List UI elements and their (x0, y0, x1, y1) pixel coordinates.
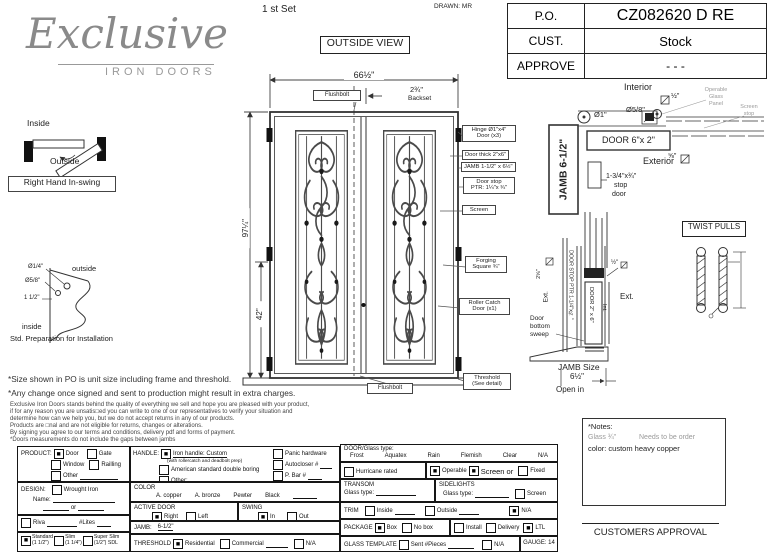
or-line-right (78, 504, 104, 511)
glass-frost[interactable]: Frost (350, 453, 364, 459)
form-sidelights-cell: SIDELIGHTS Glass type: Screen (435, 479, 558, 502)
checkbox-ltl[interactable]: ■ (523, 523, 533, 533)
form-glass-template-cell: GLASS TEMPLATE Sent #Pieces N/A (340, 536, 520, 552)
product-other-blank (80, 473, 118, 480)
operable-glass-panel-label: Operable Glass Panel (698, 87, 734, 108)
disclaimer-change: *Any change once signed and sent to prod… (8, 389, 295, 398)
option-install: Install (466, 525, 482, 531)
transom-glass-label: Glass type: (344, 490, 374, 496)
disclaimer-size: *Size shown in PO is unit size including… (8, 375, 231, 384)
checkbox-iron-handle[interactable]: ■ (161, 449, 171, 459)
notes-color: color: custom heavy copper (588, 445, 680, 453)
option-iron-handle: Iron handle: Custom (173, 451, 227, 458)
interior-label: Interior (624, 83, 652, 92)
callout-roller-catch: Roller Catch Door (x1) (459, 298, 510, 315)
sweep-line3: sweep (530, 331, 558, 339)
checkbox-panic[interactable] (273, 449, 283, 459)
option-commercial: Commercial (232, 541, 264, 547)
checkbox-super-slim[interactable] (83, 536, 93, 546)
option-delivery: Delivery (498, 525, 520, 531)
notes-title: *Notes: (588, 423, 613, 431)
active-door-label: ACTIVE DOOR (134, 505, 175, 511)
dia-1-label: Ø1" (594, 111, 607, 119)
design-name-label: Name: (33, 497, 51, 503)
product-label: PRODUCT: (21, 451, 52, 457)
checkbox-trim-na[interactable]: ■ (509, 506, 519, 516)
transom-label: TRANSOM (344, 482, 374, 488)
option-panic: Panic hardware (285, 451, 327, 457)
checkbox-riva[interactable] (21, 518, 31, 528)
transom-glass-blank (376, 489, 416, 496)
option-hurricane: Hurricane rated (356, 469, 397, 475)
checkbox-slim[interactable] (54, 536, 64, 546)
approve-label: APPROVE (508, 54, 585, 78)
option-template-na: N/A (494, 542, 504, 548)
po-label: P.O. (508, 4, 585, 28)
checkbox-fixed[interactable] (518, 466, 528, 476)
prep-dia14-label: Ø1/4" (28, 264, 43, 270)
checkbox-window[interactable] (51, 460, 61, 470)
option-riva: Riva (33, 520, 45, 526)
ss-line2: stop (736, 111, 762, 118)
dimension-lines (244, 74, 458, 378)
option-autocloser: Autocloser # (285, 462, 318, 468)
notes-order: Needs to be order (639, 434, 695, 441)
option-sent: Sent #Pieces (411, 542, 446, 548)
sweep-line2: bottom (530, 323, 558, 331)
swing-label: Right Hand In-swing (8, 176, 116, 192)
swing-inside-label: Inside (27, 119, 50, 128)
sidelights-label: SIDELIGHTS (439, 482, 475, 488)
color-abronze[interactable]: A. bronze (195, 493, 221, 499)
sidelights-glass-blank (475, 491, 509, 498)
fine-print-line6: *Doors measurements do not include the g… (10, 437, 309, 444)
form-threshold-cell: THRESHOLD ■Residential Commercial N/A (130, 534, 340, 552)
glass-template-label: GLASS TEMPLATE (344, 542, 397, 548)
option-in: In (270, 514, 275, 520)
prep-outside-label: outside (72, 265, 96, 273)
design-label: DESIGN: (21, 487, 46, 493)
option-ltl: LTL (535, 525, 545, 531)
checkbox-nobox[interactable] (402, 523, 412, 533)
or-line-left (43, 504, 69, 511)
option-super-slim: Super Slim(1/2") SDL (94, 535, 119, 546)
checkbox-operable[interactable]: ■ (430, 466, 440, 476)
trim-label: TRIM (344, 508, 359, 514)
callout-door-thick: Door thick 2"x6" (462, 150, 509, 160)
callout-door-stop: Door stop PTR: 1¼"x ¾" (463, 177, 515, 194)
cust-value: Stock (585, 34, 766, 49)
option-wrought-iron: Wrought Iron (64, 487, 99, 493)
lites-blank (97, 520, 111, 527)
callout-forging: Forging Square ¾" (465, 256, 507, 273)
glass-rain[interactable]: Rain (428, 453, 440, 459)
option-screen-or: Screen or (481, 467, 514, 476)
checkbox-gate[interactable] (87, 449, 97, 459)
design-name-blank (53, 496, 115, 503)
checkbox-in[interactable]: ■ (258, 512, 268, 521)
option-fixed: Fixed (530, 468, 545, 474)
lock-dimension: 42" (256, 301, 264, 327)
checkbox-delivery[interactable] (486, 523, 496, 533)
callout-roller-line2: Door (x1) (462, 306, 507, 312)
op-line3: Panel (698, 101, 734, 108)
checkbox-box[interactable]: ■ (375, 523, 385, 533)
checkbox-standard[interactable]: ■ (21, 536, 31, 546)
swing-label: SWING (242, 505, 262, 511)
checkbox-sidelights-screen[interactable] (515, 489, 525, 499)
color-blank (293, 492, 317, 499)
door-drawing (243, 86, 471, 385)
option-pbar: P. Bar # (285, 473, 306, 479)
ext-right-label: Ext. (620, 293, 634, 301)
glass-type-label: DOOR/Glass type: (344, 446, 394, 452)
option-sidelights-screen: Screen (527, 491, 546, 497)
checkbox-trim-outside[interactable] (425, 506, 435, 516)
form-jamb-cell: JAMB: 6-1/2" (130, 521, 340, 534)
option-trim-outside: Outside (437, 508, 458, 514)
sidelights-glass-label: Glass type: (443, 491, 473, 497)
ext-left-label: Ext. (544, 284, 551, 302)
backset-value: 2¾" (410, 86, 423, 94)
checkbox-commercial[interactable] (220, 539, 230, 549)
checkbox-right[interactable]: ■ (152, 512, 162, 521)
fine-print-line5: By signing you agree to our terms and co… (10, 430, 309, 437)
option-standard: Standard(1 1/2") (32, 535, 53, 546)
option-american-boring: American standard double boring (171, 467, 259, 473)
fine-print-line2: if for any reason you are unsatis□ed you… (10, 409, 309, 416)
customers-approval-label: CUSTOMERS APPROVAL (582, 528, 719, 538)
sent-blank (448, 542, 474, 549)
op-line1: Operable (698, 87, 734, 94)
prep-dim-label: 1 1/2" (24, 295, 39, 301)
iron-door-spec-sheet: Exclusive IRON DOORS 1 st Set DRAWN: MR … (0, 0, 768, 552)
checkbox-railling[interactable] (89, 460, 99, 470)
callout-hinge: Hinge Ø1"x4" Door (x3) (462, 125, 516, 142)
option-box: Box (387, 525, 397, 531)
half-square-label: ½" (671, 93, 679, 100)
prep-profile-drawing (42, 268, 90, 343)
callout-door-stop-line2: PTR: 1¼"x ¾" (466, 185, 512, 191)
checkbox-template-na[interactable] (482, 540, 492, 550)
glass-na[interactable]: N/A (538, 453, 548, 459)
twist-pulls-drawing (697, 248, 747, 319)
stop-door-label: 1-3/4"x¾" stop door (606, 172, 650, 199)
callout-jamb: JAMB 1-1/2" x 6½" (461, 162, 516, 172)
dia-58-label: Ø5/8" (626, 106, 645, 114)
prep-caption: Std. Preparation for Installation (10, 335, 113, 343)
disclaimer-fine-print: Exclusive Iron Doors stands behind the q… (10, 402, 309, 443)
door-6x2-label: DOOR 6"x 2" (587, 136, 670, 145)
po-value: CZ082620 D RE (585, 7, 766, 25)
option-slim: Slim(1 1/4") (65, 535, 82, 546)
gauge-value: GAUGE: 14 (523, 540, 555, 546)
form-trim-cell: TRIM Inside Outside ■N/A (340, 502, 558, 519)
notes-box: *Notes: Glass ¾" Needs to be order color… (582, 418, 726, 506)
logo-underline (58, 64, 214, 65)
twist-pulls-label: TWIST PULLS (682, 221, 746, 237)
option-residential: Residential (185, 541, 215, 547)
jamb-65-label: JAMB 6-1/2" (558, 130, 569, 210)
lites-label: #Lites (79, 520, 95, 526)
form-operable-cell: ■Operable ■Screen or Fixed (426, 462, 558, 479)
option-railling: Railling (101, 462, 121, 468)
glass-flemish[interactable]: Flemish (461, 453, 482, 459)
form-glass-type-cell: DOOR/Glass type: Frost Aquatex Rain Flem… (340, 444, 558, 462)
callout-screen: Screen (462, 205, 496, 215)
form-color-cell: COLOR A. copper A. bronze Pewter Black (130, 482, 340, 502)
sd-line3: door (612, 190, 650, 199)
color-pewter[interactable]: Pewter (233, 493, 252, 499)
int-label: Int. (600, 304, 606, 312)
glass-clear[interactable]: Clear (503, 453, 517, 459)
door-2x6-label: DOOR 2" x 6" (588, 287, 594, 341)
option-right: Right (164, 514, 178, 520)
fine-print-line4: Products are □nal and are not eligible f… (10, 423, 309, 430)
option-out: Out (299, 514, 309, 520)
option-window: Window (63, 462, 84, 468)
checkbox-trim-inside[interactable] (365, 506, 375, 516)
package-label: PACKAGE (344, 525, 373, 531)
iron-handle-sub: (with rollercatch and deadbolt prep) (167, 459, 242, 464)
checkbox-sent[interactable] (399, 540, 409, 550)
form-product-cell: PRODUCT: ■Door Gate Window Railling Othe… (17, 446, 130, 482)
drawn-label: DRAWN: MR (434, 4, 472, 11)
callout-forging-line2: Square ¾" (468, 264, 504, 270)
form-riva-cell: Riva #Lites (17, 515, 130, 532)
checkbox-pbar[interactable] (273, 471, 283, 481)
standard-sub: (1 1/2") (32, 541, 53, 547)
form-swing-cell: SWING ■In Out (238, 502, 340, 521)
op-line2: Glass (698, 94, 734, 101)
checkbox-autocloser[interactable] (273, 460, 283, 470)
form-shipping-cell: Install Delivery ■LTL (450, 519, 558, 536)
trim-inside-blank (395, 508, 415, 515)
checkbox-threshold-na[interactable] (294, 539, 304, 549)
checkbox-american-boring[interactable] (159, 465, 169, 475)
sd-line2: stop (614, 181, 650, 190)
super-slim-sub: (1/2") SDL (94, 541, 119, 547)
sweep-line1: Door (530, 315, 558, 323)
approval-signature-line[interactable] (582, 523, 719, 524)
sd-line1: 1-3/4"x¾" (606, 172, 650, 181)
form-size-cell: ■ Standard(1 1/2") Slim(1 1/4") Super Sl… (17, 532, 130, 552)
form-package-cell: PACKAGE ■Box No box (340, 519, 450, 536)
checkbox-residential[interactable]: ■ (173, 539, 183, 549)
design-or-label: or (71, 505, 76, 511)
form-gauge-cell: GAUGE: 14 (520, 536, 558, 552)
form-hurricane-cell: Hurricane rated (340, 462, 426, 479)
threshold-label: THRESHOLD (134, 541, 171, 547)
dim-258-label: 2⅝" (537, 255, 543, 279)
door-bottom-sweep-label: Door bottom sweep (530, 315, 558, 339)
po-table: P.O. CZ082620 D RE CUST. Stock APPROVE -… (507, 3, 767, 79)
option-operable: Operable (442, 468, 467, 474)
checkbox-product-other[interactable] (51, 471, 61, 481)
checkbox-screen[interactable]: ■ (469, 466, 479, 476)
jamb-label: JAMB: (134, 525, 152, 531)
callout-flushbolt-bottom: Flushbolt (367, 383, 413, 394)
checkbox-wrought-iron[interactable] (52, 485, 62, 495)
checkbox-out[interactable] (287, 512, 297, 521)
prep-dia58-label: Ø5/8" (25, 278, 40, 284)
option-nobox: No box (414, 525, 433, 531)
jamb-value: 6-1/2" (158, 524, 174, 531)
color-acopper[interactable]: A. copper (156, 493, 182, 499)
checkbox-hurricane[interactable] (344, 467, 354, 477)
checkbox-door[interactable]: ■ (54, 449, 64, 459)
outside-view-label: OUTSIDE VIEW (320, 36, 410, 54)
pbar-blank (308, 473, 322, 480)
door-stop-ptr-label: DOOR STOP PTR 1-1/4"x¾" (567, 250, 573, 348)
five-eighths-label: ⅝" (668, 153, 676, 160)
form-active-door-cell: ACTIVE DOOR ■Right Left (130, 502, 238, 521)
jamb-size-label: JAMB Size (558, 363, 600, 372)
cross-section-top (549, 96, 764, 214)
form-design-cell: DESIGN: Wrought Iron Name: or (17, 482, 130, 515)
callout-threshold-line2: (See detail) (466, 381, 508, 387)
approve-value: - - - (585, 59, 766, 73)
option-gate: Gate (99, 451, 112, 457)
option-trim-na: N/A (521, 508, 531, 514)
option-left: Left (198, 514, 208, 520)
width-dimension: 66½" (344, 71, 384, 80)
slim-sub: (1 1/4") (65, 541, 82, 547)
cust-label: CUST. (508, 29, 585, 53)
fine-print-line1: Exclusive Iron Doors stands behind the q… (10, 402, 309, 409)
trim-outside-blank (459, 508, 479, 515)
notes-glass: Glass ¾" (588, 434, 616, 441)
backset-label: Backset (408, 96, 431, 103)
commercial-blank (266, 541, 288, 548)
jamb-size-value: 6½" (570, 373, 584, 381)
swing-outside-label: Outside (50, 157, 79, 166)
prep-inside-label: inside (22, 323, 42, 331)
option-product-other: Other (63, 473, 78, 479)
riva-blank (47, 520, 77, 527)
logo-script: Exclusive (26, 12, 228, 56)
autocloser-blank (320, 462, 332, 469)
logo-subtitle: IRON DOORS (105, 67, 216, 79)
fine-print-line3: determine how can we help you, but we do… (10, 416, 309, 423)
option-trim-inside: Inside (377, 508, 393, 514)
form-handle-cell: HANDLE: ■Iron handle: Custom (with rolle… (130, 446, 340, 482)
checkbox-left[interactable] (186, 512, 196, 521)
glass-aquatex[interactable]: Aquatex (385, 453, 407, 459)
handle-label: HANDLE: (133, 451, 159, 457)
callout-threshold: Threshold (See detail) (463, 373, 511, 390)
ss-line1: Screen (736, 104, 762, 111)
callout-flushbolt-top: Flushbolt (313, 90, 361, 101)
form-transom-cell: TRANSOM Glass type: (340, 479, 435, 502)
half2-label: ½" (611, 260, 618, 266)
option-door: Door (66, 451, 79, 457)
screen-stop-label: Screen stop (736, 104, 762, 118)
color-black[interactable]: Black (265, 493, 280, 499)
set-label: 1 st Set (262, 5, 296, 16)
option-threshold-na: N/A (306, 541, 316, 547)
callout-hinge-line2: Door (x3) (465, 133, 513, 139)
color-label: COLOR (134, 485, 155, 491)
height-dimension: 97¼" (242, 208, 250, 248)
open-in-label: Open in (556, 386, 584, 394)
checkbox-install[interactable] (454, 523, 464, 533)
